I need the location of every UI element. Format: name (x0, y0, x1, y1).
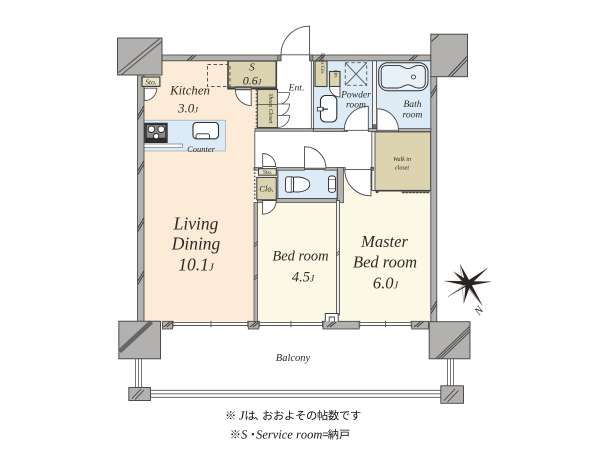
svg-text:Lin.: Lin. (333, 69, 338, 78)
svg-text:Bath: Bath (403, 99, 421, 110)
svg-text:Bed room: Bed room (272, 249, 328, 265)
svg-text:Counter: Counter (187, 144, 216, 154)
svg-text:Ent.: Ent. (288, 83, 305, 94)
svg-text:Kitchen: Kitchen (169, 84, 210, 98)
svg-text:Sto.: Sto. (263, 169, 272, 176)
svg-text:Walk in: Walk in (393, 157, 411, 163)
svg-text:Living: Living (173, 214, 219, 234)
svg-text:Balcony: Balcony (276, 353, 311, 364)
svg-text:Bed room: Bed room (353, 253, 417, 272)
svg-text:Clo.: Clo. (259, 184, 273, 194)
svg-text:room: room (403, 110, 423, 121)
svg-text:Sto.: Sto. (145, 78, 157, 87)
svg-text:room: room (346, 100, 366, 111)
svg-text:S: S (249, 62, 255, 74)
svg-text:Shoes Clo.: Shoes Clo. (319, 53, 324, 74)
svg-text:Shoes Closet: Shoes Closet (267, 94, 273, 124)
svg-text:Master: Master (360, 232, 408, 251)
svg-text:closet: closet (395, 166, 409, 172)
svg-text:Dining: Dining (171, 234, 221, 254)
